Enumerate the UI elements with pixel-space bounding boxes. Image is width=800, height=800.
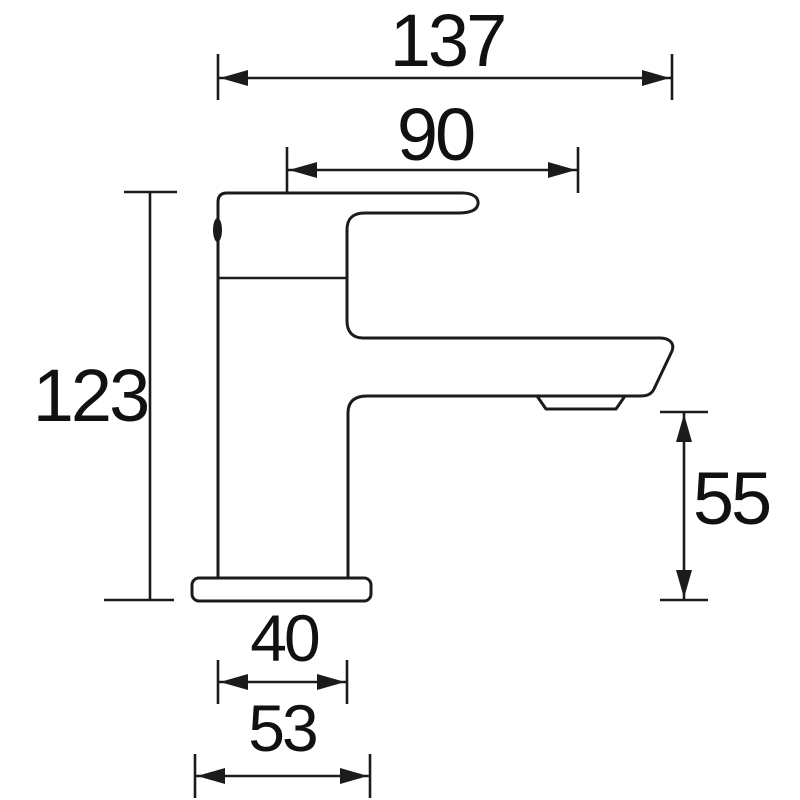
dim-40-label: 40 xyxy=(250,601,319,675)
dim-137-arrow-left xyxy=(220,70,248,86)
pivot-screw-icon xyxy=(213,218,222,242)
dim-137-arrow-right xyxy=(642,70,670,86)
dim-123-label: 123 xyxy=(33,354,147,437)
dim-overall-depth: 137 xyxy=(218,0,672,100)
dim-40-arrow-right xyxy=(317,674,345,690)
dim-90-label: 90 xyxy=(397,93,474,176)
base-flange xyxy=(192,578,371,601)
dim-90-arrow-right xyxy=(548,162,576,178)
dim-55-arrow-down xyxy=(676,570,692,598)
dim-base-width: 53 xyxy=(195,691,370,798)
drawing-canvas: 137 90 123 55 xyxy=(0,0,800,800)
tap-dimension-diagram: 137 90 123 55 xyxy=(0,0,800,800)
dim-90-arrow-left xyxy=(289,162,317,178)
dim-spout-height: 55 xyxy=(660,412,770,600)
dim-55-label: 55 xyxy=(693,457,770,540)
dim-137-label: 137 xyxy=(390,0,504,82)
dim-53-arrow-right xyxy=(340,768,368,784)
dim-body-width: 40 xyxy=(218,601,347,704)
dim-40-arrow-left xyxy=(220,674,248,690)
dim-spout-reach: 90 xyxy=(287,93,578,193)
dim-overall-height: 123 xyxy=(33,192,177,600)
faucet-body-outline xyxy=(218,193,673,578)
faucet-outline xyxy=(192,193,673,601)
dim-55-arrow-up xyxy=(676,414,692,442)
dim-53-label: 53 xyxy=(248,691,316,765)
spout-aerator xyxy=(537,396,625,409)
dim-53-arrow-left xyxy=(197,768,225,784)
